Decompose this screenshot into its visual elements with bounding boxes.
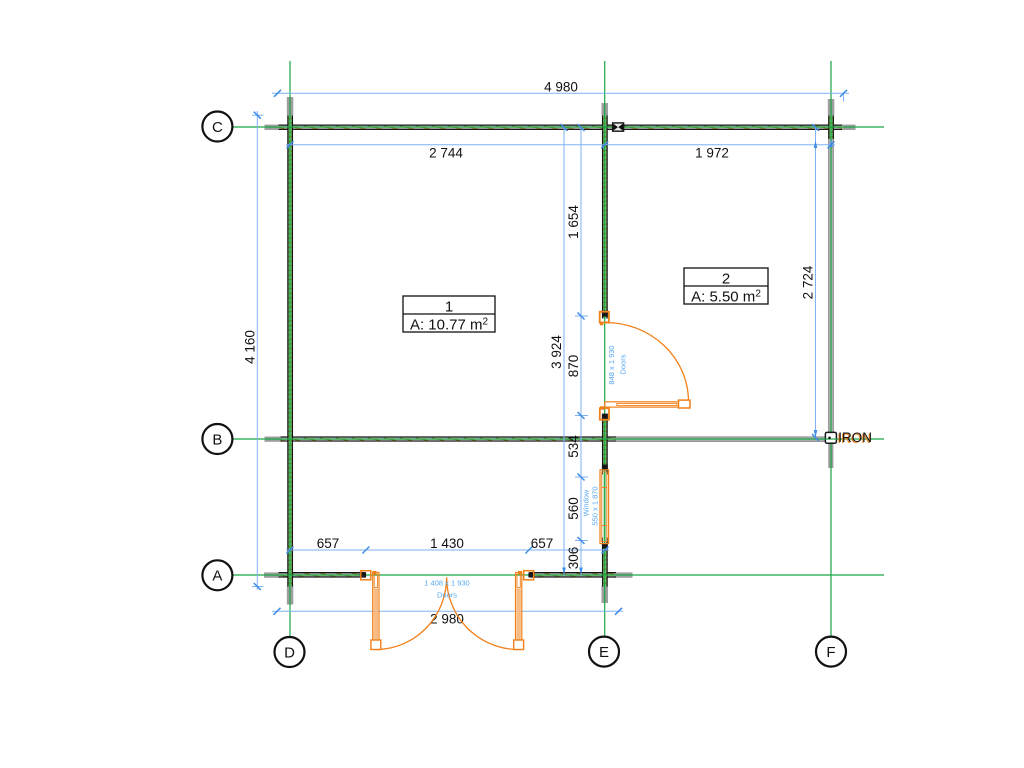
svg-text:C: C — [212, 119, 223, 136]
svg-text:IRON: IRON — [838, 430, 872, 445]
svg-text:2: 2 — [722, 271, 730, 288]
svg-text:1 654: 1 654 — [566, 205, 581, 239]
svg-text:Window: Window — [582, 489, 591, 516]
svg-text:2 724: 2 724 — [801, 265, 816, 299]
svg-text:Doors: Doors — [619, 354, 628, 374]
svg-text:870: 870 — [566, 355, 581, 378]
svg-text:B: B — [212, 431, 222, 448]
svg-text:1 430: 1 430 — [430, 536, 464, 551]
svg-text:3 924: 3 924 — [549, 335, 564, 369]
svg-text:657: 657 — [317, 536, 340, 551]
svg-text:657: 657 — [531, 536, 554, 551]
svg-text:F: F — [826, 644, 835, 661]
svg-text:2 744: 2 744 — [429, 146, 463, 161]
svg-text:560: 560 — [566, 497, 581, 520]
svg-text:306: 306 — [566, 547, 581, 570]
svg-text:E: E — [599, 644, 609, 661]
svg-text:1 408 x 1 930: 1 408 x 1 930 — [424, 579, 469, 588]
svg-text:A: A — [212, 568, 222, 585]
svg-text:550 x 1 870: 550 x 1 870 — [591, 486, 600, 525]
svg-text:Doors: Doors — [437, 591, 457, 600]
svg-text:848 x 1 930: 848 x 1 930 — [607, 345, 616, 384]
svg-text:1: 1 — [445, 299, 453, 316]
svg-text:1 972: 1 972 — [695, 146, 729, 161]
svg-text:4 980: 4 980 — [544, 79, 578, 94]
svg-text:534: 534 — [566, 435, 581, 458]
svg-text:D: D — [284, 644, 295, 661]
svg-text:4 160: 4 160 — [242, 330, 257, 364]
svg-text:A: 5.50 m2: A: 5.50 m2 — [691, 289, 761, 306]
svg-text:A: 10.77 m2: A: 10.77 m2 — [410, 317, 489, 334]
